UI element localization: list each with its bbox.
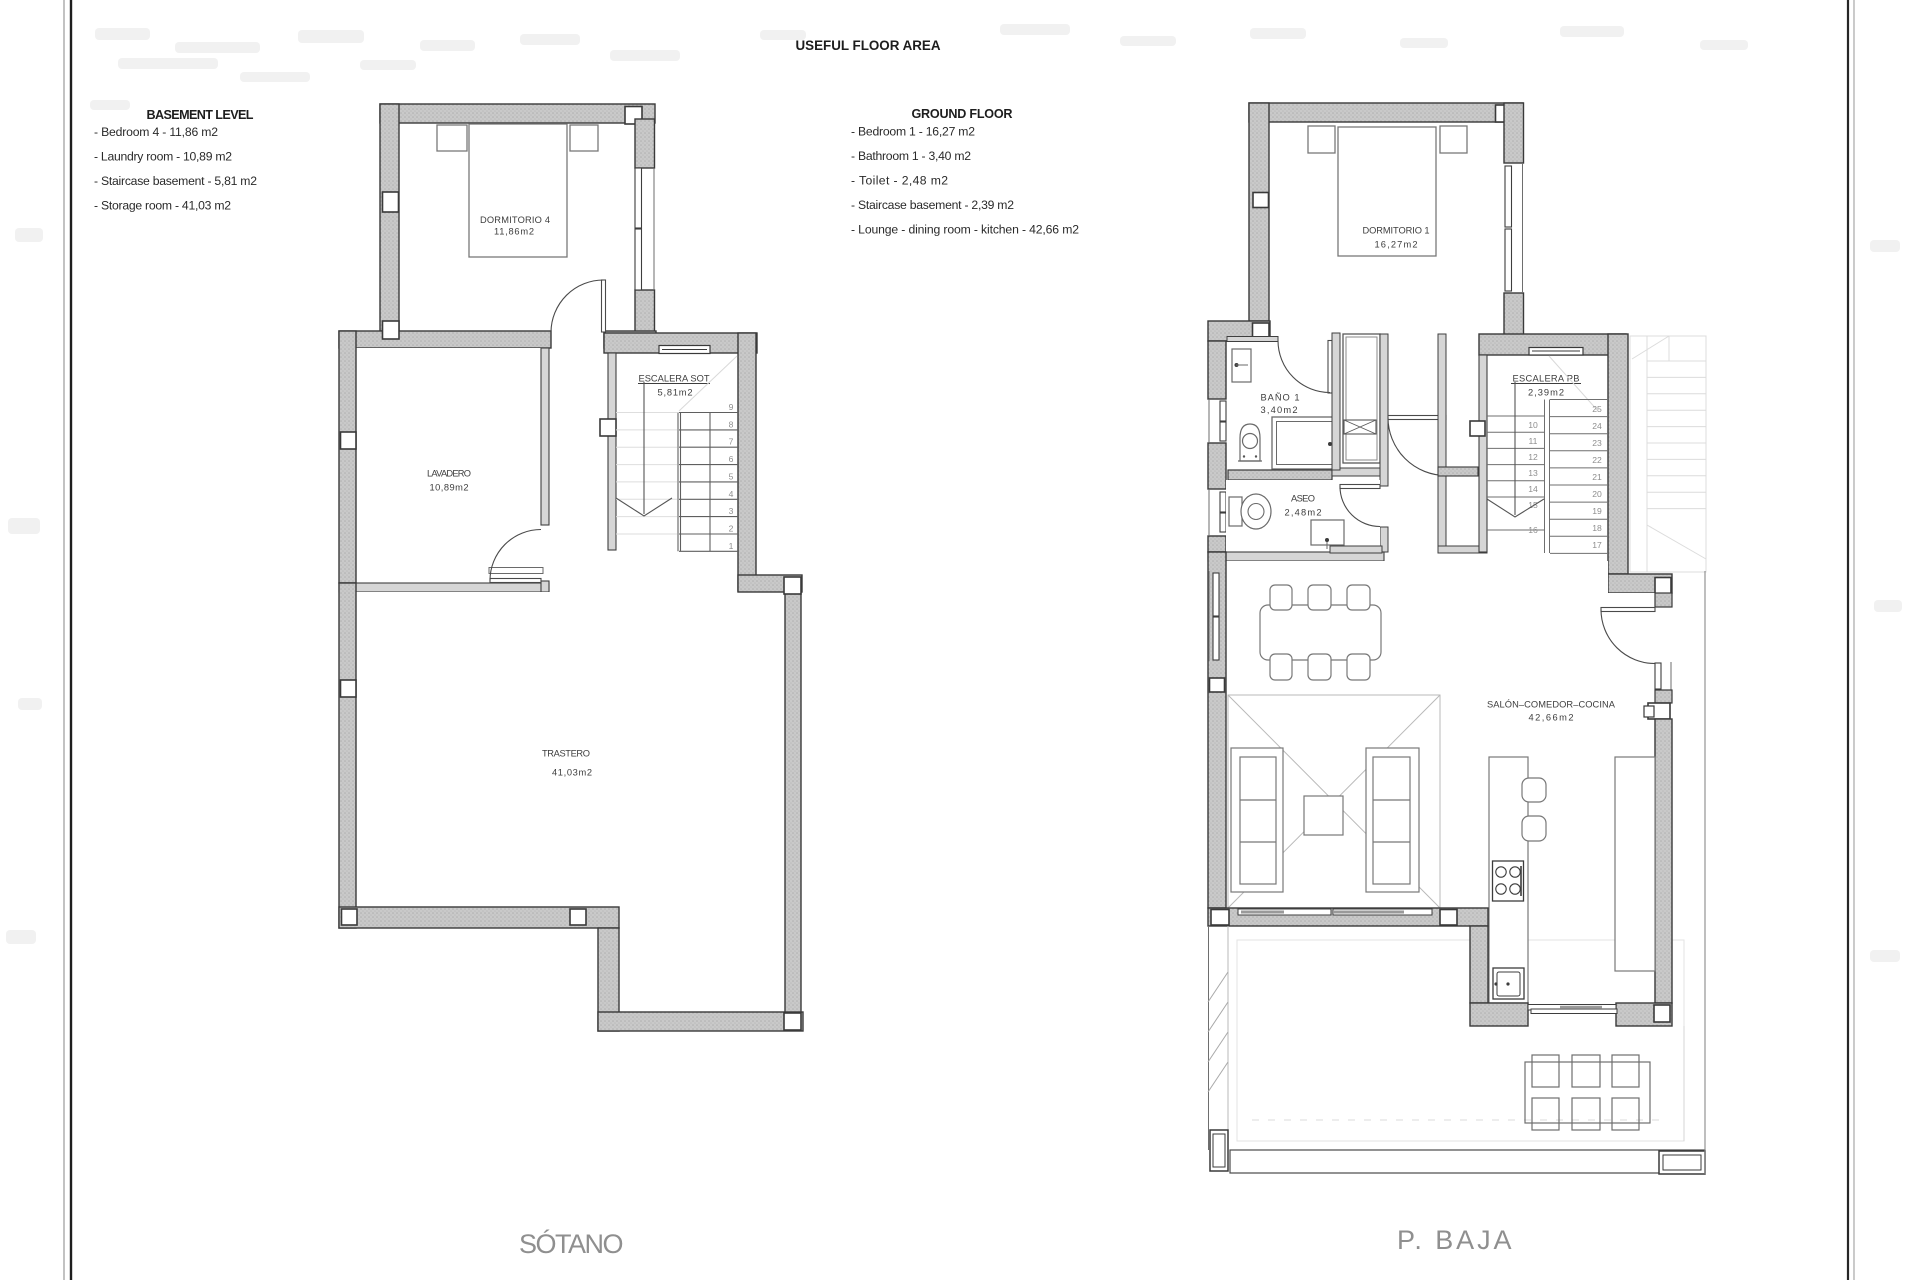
svg-text:- Toilet - 2,48 m2: - Toilet - 2,48 m2 <box>851 174 948 188</box>
svg-text:ESCALERA SOT: ESCALERA SOT <box>639 374 710 384</box>
svg-text:GROUND FLOOR: GROUND FLOOR <box>912 107 1013 121</box>
svg-text:11: 11 <box>1529 436 1538 446</box>
svg-text:8: 8 <box>729 419 734 429</box>
svg-text:24: 24 <box>1592 421 1602 431</box>
svg-text:ASEO: ASEO <box>1291 494 1315 504</box>
svg-text:USEFUL FLOOR AREA: USEFUL FLOOR AREA <box>796 38 941 53</box>
svg-text:21: 21 <box>1592 472 1602 482</box>
svg-text:- Bedroom 4 - 11,86 m2: - Bedroom 4 - 11,86 m2 <box>94 125 218 139</box>
svg-text:9: 9 <box>729 402 734 412</box>
svg-text:- Bathroom 1 - 3,40 m2: - Bathroom 1 - 3,40 m2 <box>851 149 971 163</box>
svg-text:SALÓN–COMEDOR–COCINA: SALÓN–COMEDOR–COCINA <box>1487 700 1616 710</box>
svg-text:5: 5 <box>729 471 734 481</box>
svg-text:LAVADERO: LAVADERO <box>427 469 471 479</box>
svg-text:23: 23 <box>1592 438 1602 448</box>
svg-text:5,81m2: 5,81m2 <box>658 388 693 398</box>
svg-text:6: 6 <box>729 454 734 464</box>
svg-text:13: 13 <box>1528 468 1538 478</box>
svg-text:TRASTERO: TRASTERO <box>542 749 590 759</box>
svg-text:12: 12 <box>1528 452 1538 462</box>
svg-text:18: 18 <box>1592 523 1602 533</box>
svg-text:3: 3 <box>729 506 734 516</box>
svg-text:SÓTANO: SÓTANO <box>519 1228 625 1259</box>
svg-text:3,40m2: 3,40m2 <box>1261 405 1298 415</box>
svg-text:10: 10 <box>1528 420 1538 430</box>
svg-text:- Staircase basement - 5,81 m2: - Staircase basement - 5,81 m2 <box>94 174 257 188</box>
svg-text:25: 25 <box>1592 404 1602 414</box>
svg-text:- Staircase basement - 2,39 m2: - Staircase basement - 2,39 m2 <box>851 198 1014 212</box>
svg-text:7: 7 <box>729 437 734 447</box>
svg-text:- Bedroom 1 - 16,27 m2: - Bedroom 1 - 16,27 m2 <box>851 125 975 139</box>
svg-text:1: 1 <box>729 541 734 551</box>
svg-text:16,27m2: 16,27m2 <box>1375 240 1418 250</box>
svg-text:2,48m2: 2,48m2 <box>1285 508 1322 518</box>
svg-text:14: 14 <box>1528 484 1538 494</box>
svg-text:DORMITORIO 1: DORMITORIO 1 <box>1363 226 1430 236</box>
svg-text:- Storage room - 41,03 m2: - Storage room - 41,03 m2 <box>94 199 231 213</box>
svg-text:2: 2 <box>729 524 734 534</box>
svg-text:4: 4 <box>729 489 734 499</box>
svg-text:16: 16 <box>1528 525 1538 535</box>
svg-text:42,66m2: 42,66m2 <box>1529 713 1574 723</box>
svg-text:- Laundry room - 10,89 m2: - Laundry room - 10,89 m2 <box>94 150 232 164</box>
svg-text:41,03m2: 41,03m2 <box>552 768 592 778</box>
svg-text:2,39m2: 2,39m2 <box>1528 388 1564 398</box>
svg-text:11,86m2: 11,86m2 <box>494 227 534 237</box>
svg-text:BAÑO 1: BAÑO 1 <box>1261 393 1300 403</box>
svg-text:17: 17 <box>1592 540 1602 550</box>
svg-text:DORMITORIO 4: DORMITORIO 4 <box>480 215 550 225</box>
svg-text:19: 19 <box>1592 506 1602 516</box>
svg-text:10,89m2: 10,89m2 <box>430 483 469 493</box>
svg-text:20: 20 <box>1592 489 1602 499</box>
svg-text:- Lounge - dining room - kitch: - Lounge - dining room - kitchen - 42,66… <box>851 223 1079 237</box>
svg-text:22: 22 <box>1592 455 1602 465</box>
svg-text:BASEMENT LEVEL: BASEMENT LEVEL <box>147 108 254 122</box>
